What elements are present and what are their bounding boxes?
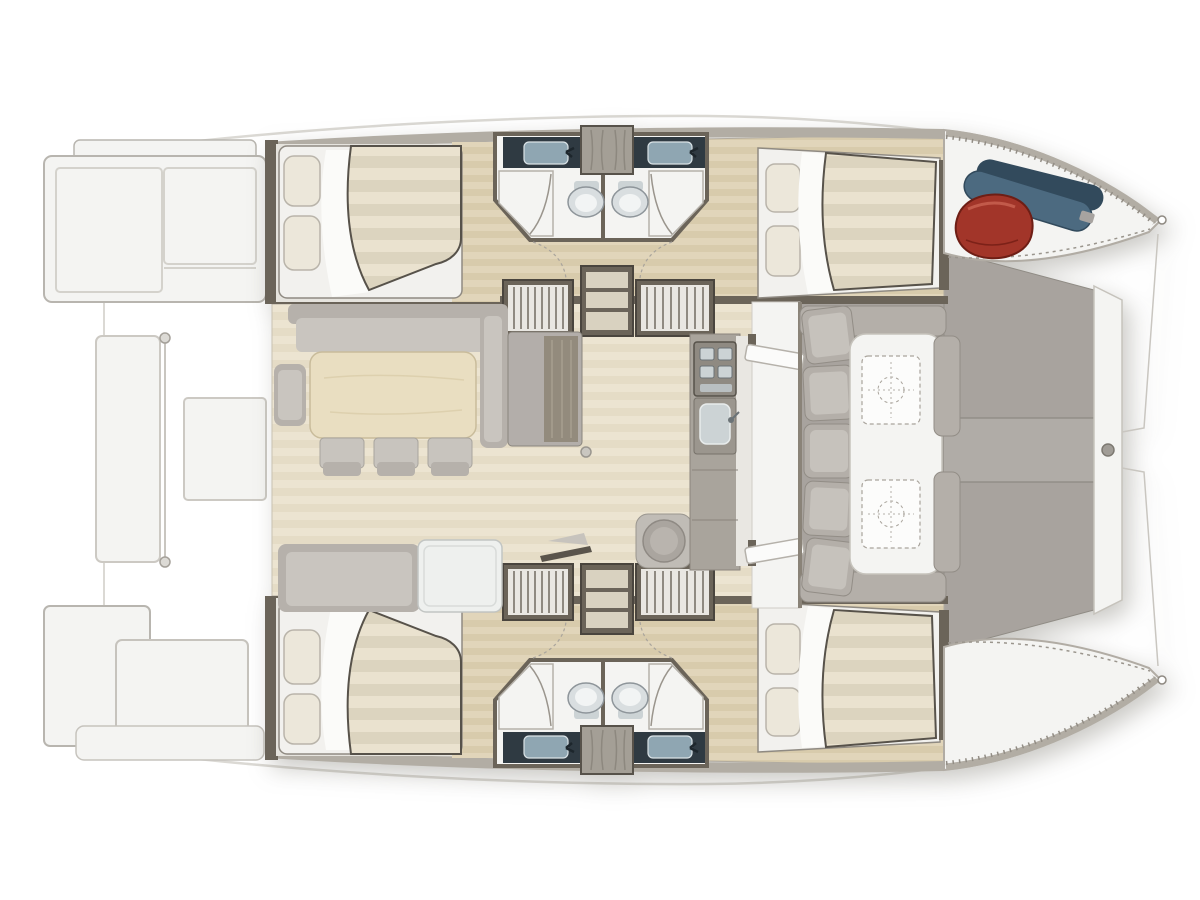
stanchion-dot (160, 333, 170, 343)
sofa-seat-top (296, 318, 496, 352)
cockpit-cushion-fan (801, 305, 857, 597)
bridle-line (1122, 468, 1158, 666)
stove-control-strip (700, 384, 732, 392)
cabinet-knob (581, 447, 591, 457)
sofa-seat-right (484, 316, 502, 442)
swim-platform-top (44, 156, 266, 302)
catamaran-floorplan (0, 0, 1200, 900)
forestay-fitting-dot (1102, 444, 1114, 456)
galley-sink (694, 398, 739, 454)
cockpit-table (862, 356, 920, 424)
foredeck-center-panel (944, 418, 1094, 482)
dining-chair (374, 438, 418, 476)
cockpit-side-cushion (934, 472, 960, 572)
swim-platform-bottom (116, 640, 248, 732)
stove (694, 342, 736, 396)
sofa-armrest-pad (278, 370, 302, 420)
chaise-sofa-pad (286, 552, 412, 606)
coffee-table (418, 540, 502, 612)
storage-cabinet (508, 332, 582, 446)
aft-bench (96, 336, 160, 562)
forward-cockpit (800, 305, 960, 602)
helm-stool (636, 514, 692, 568)
aft-locker (184, 398, 266, 500)
aft-deck-between-hulls (96, 333, 266, 567)
boat-body (265, 126, 1166, 774)
bridle-line (1122, 234, 1158, 432)
floorplan-canvas (0, 0, 1200, 900)
transom-step (76, 726, 264, 760)
cockpit-bulkhead-line (798, 302, 802, 608)
forward-door (745, 302, 805, 608)
galley (690, 334, 758, 570)
cockpit-side-cushion (934, 336, 960, 436)
foredeck (944, 234, 1158, 666)
aft-platforms (44, 140, 266, 760)
cockpit-table (862, 480, 920, 548)
dining-table (310, 352, 476, 438)
stanchion-dot (160, 557, 170, 567)
dining-chair (320, 438, 364, 476)
dining-chair (428, 438, 472, 476)
